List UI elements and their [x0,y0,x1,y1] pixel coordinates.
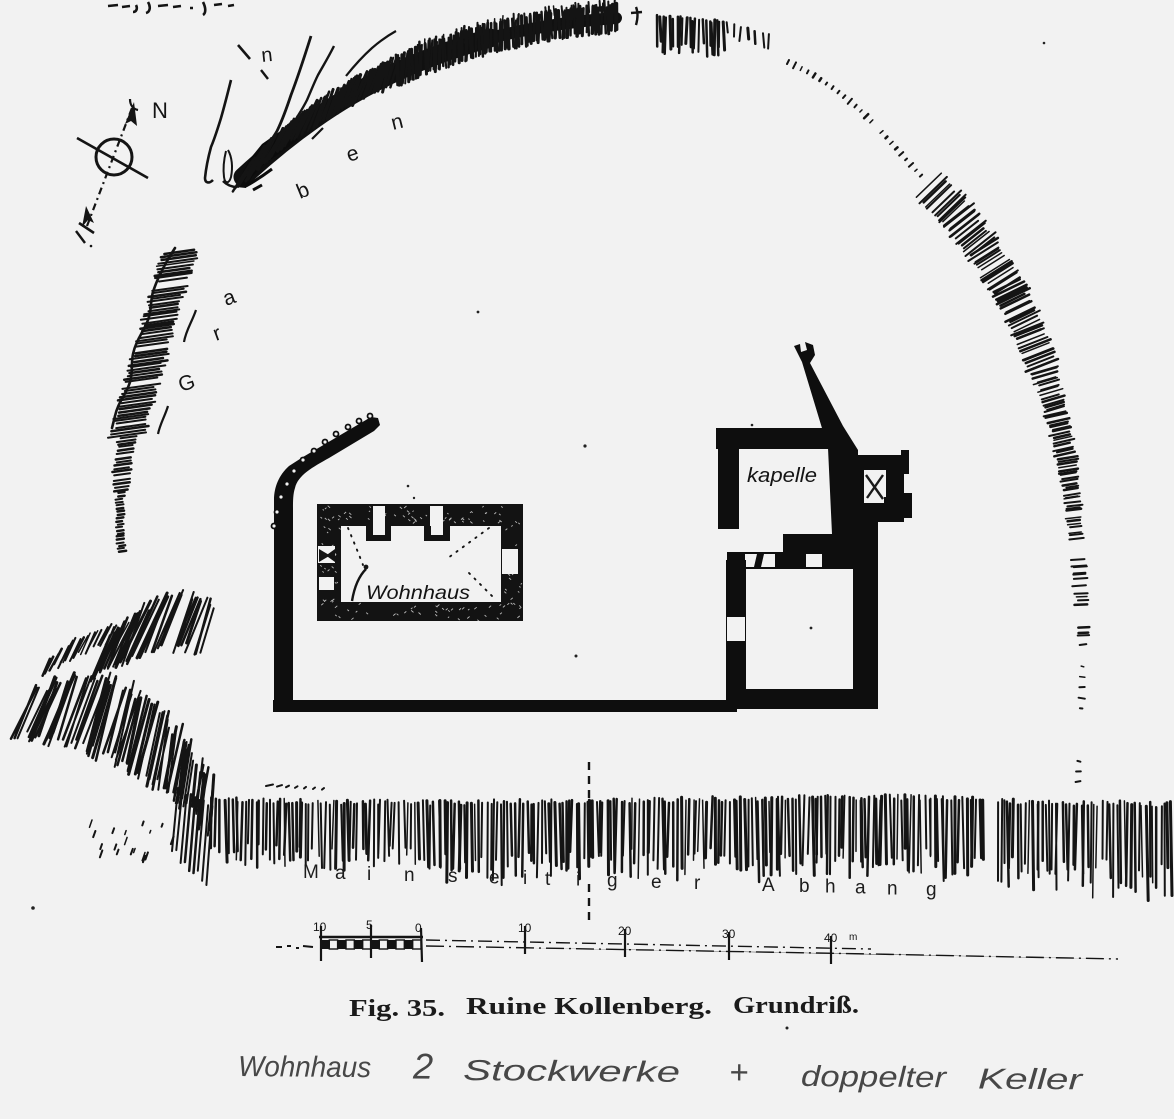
svg-text:g: g [926,880,937,901]
svg-text:Keller: Keller [978,1063,1084,1096]
svg-text:e: e [651,872,662,893]
svg-text:5: 5 [366,918,373,932]
svg-text:kapelle: kapelle [747,465,817,487]
svg-text:+: + [729,1053,749,1090]
svg-text:Stockwerke: Stockwerke [463,1055,680,1089]
svg-text:e: e [489,867,500,888]
svg-text:40: 40 [824,931,838,945]
svg-text:M: M [303,862,319,883]
svg-text:b: b [799,876,810,897]
svg-text:A: A [762,875,775,896]
svg-text:Fig. 35.: Fig. 35. [349,996,445,1022]
svg-text:r: r [694,873,701,894]
svg-text:Wohnhaus: Wohnhaus [238,1051,371,1084]
svg-text:Grundriß.: Grundriß. [733,993,859,1019]
svg-text:m: m [849,932,857,943]
svg-text:s: s [448,866,458,887]
svg-text:i: i [367,864,371,885]
svg-text:a: a [855,878,866,899]
svg-text:Ruine Kollenberg.: Ruine Kollenberg. [466,994,712,1020]
svg-text:Wohnhaus: Wohnhaus [366,583,471,604]
svg-text:n: n [887,878,898,899]
svg-text:n: n [260,44,273,67]
svg-text:t: t [545,869,551,890]
svg-text:g: g [607,871,618,892]
svg-text:10: 10 [313,920,327,934]
svg-text:i: i [576,870,580,891]
svg-text:2: 2 [412,1046,433,1087]
svg-text:N: N [152,98,168,123]
svg-text:0: 0 [415,921,422,935]
svg-text:20: 20 [618,924,632,938]
svg-text:a: a [335,863,346,884]
svg-text:30: 30 [722,927,736,941]
svg-text:doppelter: doppelter [801,1061,948,1094]
svg-text:10: 10 [518,921,532,935]
svg-text:n: n [404,865,415,886]
svg-text:i: i [523,868,527,889]
svg-text:h: h [825,877,836,898]
